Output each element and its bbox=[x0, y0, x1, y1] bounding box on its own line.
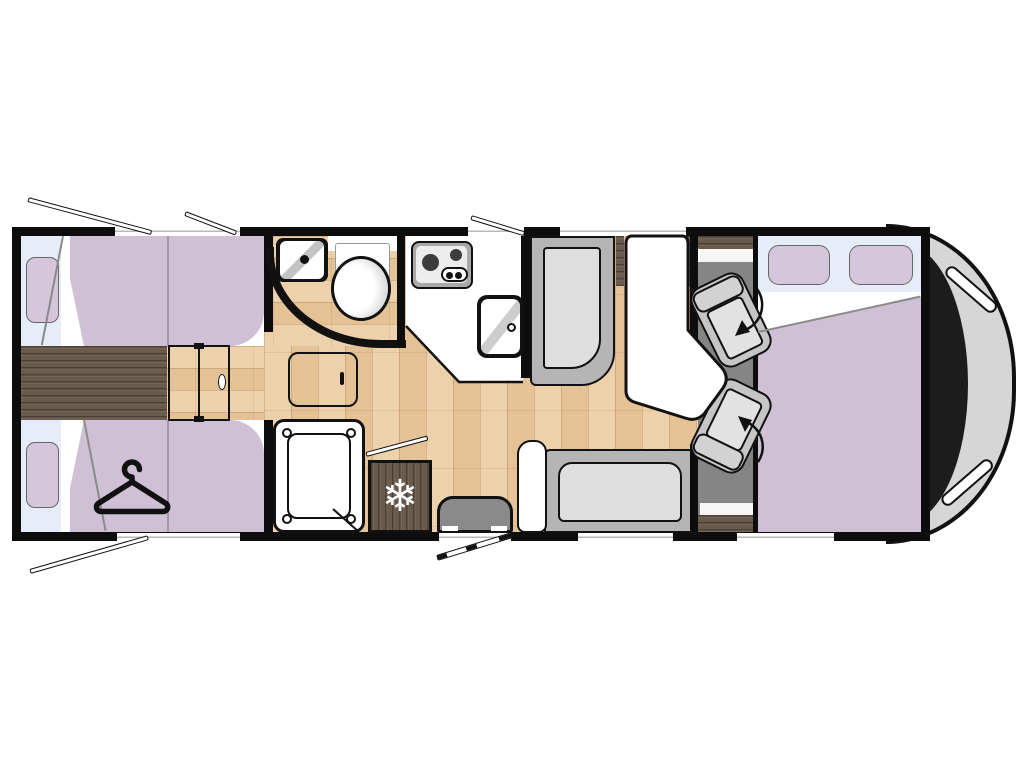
washbasin-faucet-dot bbox=[300, 255, 309, 264]
dropbed-blanket bbox=[758, 292, 921, 532]
hob-controls bbox=[441, 267, 468, 282]
bed-platform bbox=[21, 346, 167, 420]
entry-step-threshold-left bbox=[442, 526, 458, 531]
dinette-side-bench-endpanel bbox=[517, 440, 547, 533]
dropbed-pillow-right bbox=[849, 245, 913, 285]
entry-step-threshold-right bbox=[491, 526, 507, 531]
kitchen-sink-faucet bbox=[507, 323, 516, 332]
toilet-bowl bbox=[331, 256, 391, 321]
bedroom-door-leaf-line bbox=[198, 347, 200, 420]
window-gap-bottom-dinette bbox=[578, 533, 673, 542]
hob-knob-2 bbox=[455, 272, 462, 279]
kitchen-sink-basin bbox=[481, 299, 520, 354]
top-bed-seam bbox=[167, 236, 169, 346]
bottom-bed-pillow bbox=[26, 442, 59, 508]
bedroom-door-handle bbox=[218, 374, 226, 390]
shower-drain-tr bbox=[346, 428, 356, 438]
window-gap-top-dinette bbox=[560, 227, 686, 236]
wall-bedroom-shower-bottom bbox=[264, 420, 273, 532]
bathroom-door-handle bbox=[340, 372, 344, 385]
cab-top-shelf bbox=[700, 249, 757, 262]
shower-drain-tl bbox=[282, 428, 292, 438]
shower-tray-inner bbox=[287, 433, 351, 519]
bedroom-door-hinge-top bbox=[194, 343, 204, 349]
dropbed-pillow-left bbox=[768, 245, 830, 285]
dinette-forward-bench-cushion bbox=[543, 247, 601, 369]
cab-bottom-shelf-wood bbox=[698, 515, 757, 532]
cab-top-shelf-wood bbox=[698, 236, 757, 249]
snowflake-icon: ❄ bbox=[382, 475, 419, 519]
bathroom-door-open bbox=[288, 352, 358, 407]
window-gap-bottom-dropbed bbox=[737, 533, 834, 542]
shower-drain-bl bbox=[282, 514, 292, 524]
kitchen-sink bbox=[477, 295, 524, 358]
corner-washbasin bbox=[276, 238, 328, 282]
motorhome-floorplan: ❄ bbox=[0, 0, 1024, 768]
top-bed-pillow bbox=[26, 257, 59, 323]
bottom-bed-seam bbox=[167, 420, 169, 532]
dinette-side-bench-cushion bbox=[558, 462, 682, 522]
shower-drain-br bbox=[346, 514, 356, 524]
hob-burner-large bbox=[422, 254, 439, 271]
table-post-left bbox=[616, 236, 624, 286]
kitchen-hob bbox=[411, 241, 473, 289]
refrigerator: ❄ bbox=[368, 460, 432, 533]
hob-knob-1 bbox=[446, 272, 453, 279]
cab-bottom-shelf bbox=[700, 503, 757, 515]
washbasin-bowl bbox=[280, 241, 324, 279]
wall-cabseats-dropbed bbox=[753, 236, 758, 532]
hob-burner-small bbox=[450, 249, 462, 261]
bedroom-door-hinge-bottom bbox=[194, 416, 204, 422]
wall-bathroom-kitchen bbox=[397, 236, 405, 346]
